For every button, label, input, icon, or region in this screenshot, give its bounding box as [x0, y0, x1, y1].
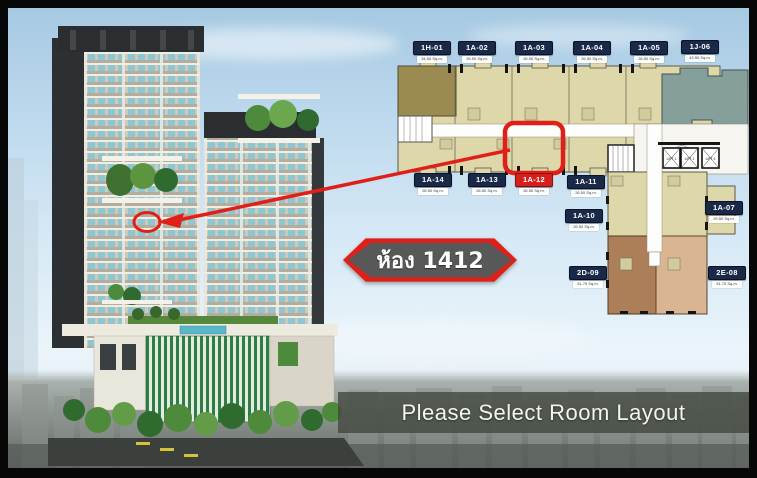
plan-stair-core [608, 145, 634, 172]
unit-badge-1A-11[interactable]: 1A-11 26.50 Sq.m. [567, 175, 605, 197]
room-callout-label: ห้อง 1412 [376, 243, 483, 278]
unit-area: 26.50 Sq.m. [634, 56, 664, 63]
pool [180, 326, 226, 334]
building-render [48, 26, 364, 466]
unit-badge-1J-06[interactable]: 1J-06 43.50 Sq.m. [681, 40, 719, 62]
unit-badge-2D-09[interactable]: 2D-09 51.75 Sq.m. [569, 266, 607, 288]
lift-2-label: LIFT 2 [685, 157, 695, 161]
unit-id: 1A-02 [458, 41, 496, 55]
unit-area: 26.50 Sq.m. [472, 188, 502, 195]
plan-stair-left [398, 116, 432, 142]
lift-1-label: LIFT 1 [667, 157, 677, 161]
unit-area: 26.50 Sq.m. [577, 56, 607, 63]
unit-id: 1A-13 [468, 173, 506, 187]
unit-badge-1A-13[interactable]: 1A-13 26.50 Sq.m. [468, 173, 506, 195]
unit-area: 43.50 Sq.m. [685, 55, 715, 62]
unit-id: 1A-11 [567, 175, 605, 189]
unit-area: 26.50 Sq.m. [571, 190, 601, 197]
unit-id: 1A-04 [573, 41, 611, 55]
unit-badge-1A-03[interactable]: 1A-03 26.50 Sq.m. [515, 41, 553, 63]
unit-id: 1A-14 [414, 173, 452, 187]
content-frame: LIFT 1 LIFT 2 LIFT 3 [8, 8, 749, 468]
ground-road [48, 438, 364, 466]
unit-area: 26.50 Sq.m. [519, 56, 549, 63]
unit-area: 26.50 Sq.m. [519, 188, 549, 195]
unit-badge-1A-02[interactable]: 1A-02 26.50 Sq.m. [458, 41, 496, 63]
unit-id: 1A-07 [705, 201, 743, 215]
unit-id: 1A-05 [630, 41, 668, 55]
unit-area: 29.50 Sq.m. [709, 216, 739, 223]
plan-unit-2E-08 [656, 236, 707, 314]
unit-badge-1A-04[interactable]: 1A-04 26.50 Sq.m. [573, 41, 611, 63]
distant-towers [8, 158, 38, 378]
tower-left-core [52, 38, 84, 348]
lift-core: LIFT 1 LIFT 2 LIFT 3 [663, 148, 719, 168]
unit-area: 34.50 Sq.m. [417, 56, 447, 63]
unit-id: 2E-08 [708, 266, 746, 280]
unit-id: 1H-01 [413, 41, 451, 55]
unit-id: 2D-09 [569, 266, 607, 280]
unit-id: 1A-10 [565, 209, 603, 223]
unit-area: 51.75 Sq.m. [573, 281, 603, 288]
unit-badge-1A-05[interactable]: 1A-05 26.50 Sq.m. [630, 41, 668, 63]
unit-area: 26.50 Sq.m. [462, 56, 492, 63]
screenshot-root: LIFT 1 LIFT 2 LIFT 3 [0, 0, 757, 478]
unit-id: 1A-03 [515, 41, 553, 55]
tower-right-core [312, 138, 324, 352]
unit-badge-1A-07[interactable]: 1A-07 29.50 Sq.m. [705, 201, 743, 223]
unit-id: 1A-12 [515, 173, 553, 187]
unit-badge-1A-14[interactable]: 1A-14 26.50 Sq.m. [414, 173, 452, 195]
unit-badge-1A-12[interactable]: 1A-12 26.50 Sq.m. [515, 173, 553, 195]
lift-3-label: LIFT 3 [706, 157, 716, 161]
green-louvre-wall [146, 336, 270, 422]
unit-badge-1A-10[interactable]: 1A-10 26.50 Sq.m. [565, 209, 603, 231]
unit-badge-2E-08[interactable]: 2E-08 51.75 Sq.m. [708, 266, 746, 288]
plan-unit-1J-06 [662, 68, 748, 126]
unit-badge-1H-01[interactable]: 1H-01 34.50 Sq.m. [413, 41, 451, 63]
unit-area: 26.50 Sq.m. [569, 224, 599, 231]
room-callout: ห้อง 1412 [343, 237, 517, 283]
footer-bar: Please Select Room Layout [338, 392, 749, 433]
plan-unit-1H-01 [398, 66, 456, 116]
unit-area: 26.50 Sq.m. [418, 188, 448, 195]
unit-id: 1J-06 [681, 40, 719, 54]
footer-message: Please Select Room Layout [402, 400, 686, 426]
room-callout-body: ห้อง 1412 [348, 242, 512, 278]
unit-area: 51.75 Sq.m. [712, 281, 742, 288]
